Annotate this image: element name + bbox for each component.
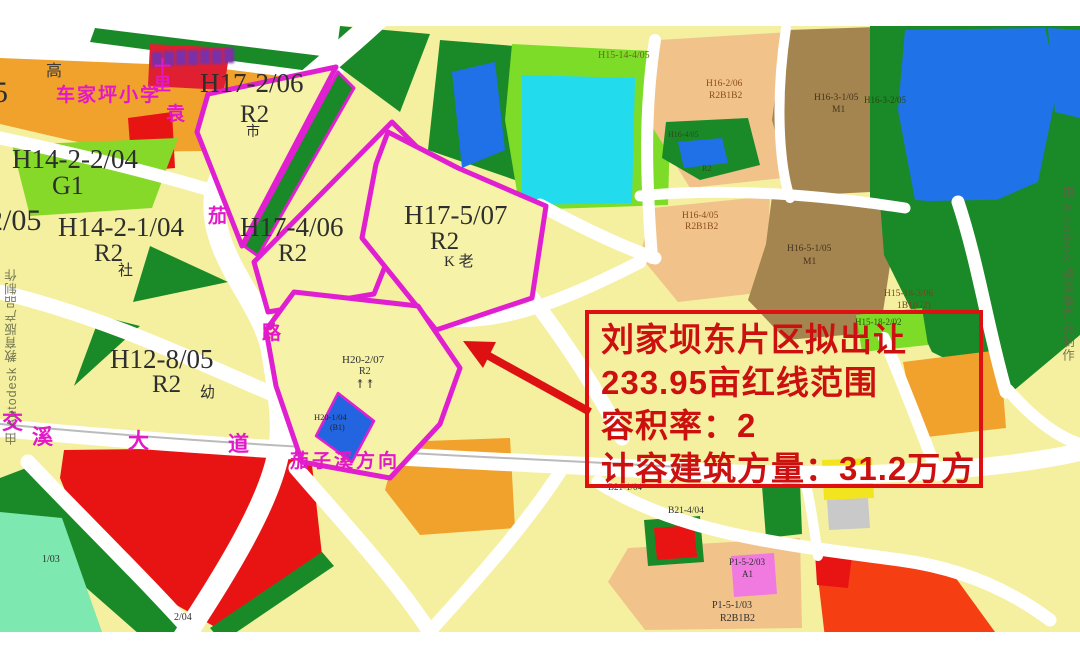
mark-k-lao: K 老 — [444, 255, 474, 270]
parcel-label-h17-4: H17-4/06 — [240, 214, 344, 241]
annotation-line-4: 计容建筑方量：31.2万方 — [601, 447, 979, 490]
tree-icons: ↟↟ — [355, 378, 375, 390]
zone-label-h16-4: R2B1B2 — [685, 223, 718, 233]
street-char-lu: 路 — [262, 324, 281, 343]
street-char-xi: 溪 — [32, 427, 53, 448]
parcel-label-h16-5-1: H16-5-1/05 — [787, 245, 831, 255]
zone-label-p1-5-2: A1 — [742, 570, 753, 579]
parcel-label-h16-3-2: H16-3-2/05 — [864, 96, 906, 105]
mark-you: 幼 — [200, 386, 215, 401]
green-b-right — [762, 482, 802, 538]
zone-label-h16-2: R2B1B2 — [709, 92, 742, 102]
zone-label-h16-3-1: M1 — [832, 106, 845, 116]
parcel-label-b21-4: B21-4/04 — [668, 507, 704, 517]
parcel-label-edge-2-04: 2/04 — [174, 613, 192, 623]
parcel-label-h17-5: H17-5/07 — [404, 202, 508, 229]
zone-label-p1-5-1: R2B1B2 — [720, 614, 755, 624]
annotation-line-1: 刘家坝东片区拟出让 — [601, 318, 979, 361]
autodesk-credit-right: 由 Autodesk 教育版产品制作 — [1058, 185, 1077, 415]
street-char-da: 大 — [128, 431, 149, 452]
parcel-label-h20-2: H20-2/07 — [342, 355, 384, 366]
street-char-yuan: 袁 — [166, 105, 185, 124]
parcel-label-edge-5: 5 — [0, 78, 8, 108]
parcel-label-h14-2-1: H14-2-1/04 — [58, 214, 184, 241]
autodesk-credit-left: 由 Autodesk 教育版产品制作 — [2, 185, 21, 445]
street-char-qie: 茄 — [208, 207, 227, 226]
parcel-label-h16-3-1: H16-3-1/05 — [814, 94, 858, 104]
top-margin — [0, 0, 1080, 26]
parcel-label-edge-1-03: 1/03 — [42, 555, 60, 565]
annotation-box: 刘家坝东片区拟出让 233.95亩红线范围 容积率：2 计容建筑方量：31.2万… — [585, 310, 983, 488]
parcel-label-h20-1: H20-1/04 — [314, 413, 347, 422]
cyan-parcel — [522, 75, 635, 205]
parcel-label-h16-small: H16-4/05 — [668, 131, 699, 139]
parcel-label-p1-5-2: P1-5-2/03 — [729, 558, 765, 567]
mark-shi: 市 — [246, 126, 260, 140]
parcel-label-h12-8: H12-8/05 — [110, 346, 214, 373]
parcel-label-h15-18-3: H15-18-3/06 — [884, 290, 933, 300]
zone-label-h20-1: (B1) — [330, 424, 345, 432]
annotation-line-2: 233.95亩红线范围 — [601, 361, 979, 404]
parcel-label-p1-5-1: P1-5-1/03 — [712, 601, 752, 611]
parcel-label-h16-4: H16-4/05 — [682, 212, 718, 222]
river-blue — [898, 28, 1058, 205]
zone-label-g1: G1 — [52, 173, 84, 199]
parcel-label-h16-2: H16-2/06 — [706, 80, 742, 90]
zone-label-h17-4: R2 — [278, 241, 307, 266]
bottom-margin — [0, 632, 1080, 649]
zone-label-h12-8: R2 — [152, 372, 181, 397]
zone-label-h16-5-1: M1 — [803, 258, 816, 268]
gray-patch — [827, 498, 870, 530]
annotation-line-3: 容积率：2 — [601, 404, 979, 447]
mark-she: 社 — [118, 264, 133, 279]
zone-label-h16-small: R2 — [702, 165, 711, 173]
zone-label-h17-5: R2 — [430, 229, 459, 254]
parcel-label-h15-14-4: H15-14-4/05 — [598, 51, 650, 61]
mark-gao: 高 — [46, 64, 62, 80]
parcel-label-h17-2: H17-2/06 — [200, 70, 304, 97]
label-qiezixi-direction: 茄子溪方向 — [290, 452, 400, 471]
zone-label-h20-2: R2 — [359, 367, 371, 377]
zone-label-h17-2: R2 — [240, 102, 269, 127]
parcel-label-h14-2-2: H14-2-2/04 — [12, 146, 138, 173]
street-char-dao: 道 — [228, 434, 249, 455]
red-square-b21 — [654, 525, 697, 560]
street-shili: 十里 — [152, 58, 169, 92]
zoning-map: 5 高 车家坪小学 十里 袁 茄 路 H14-2-2/04 G1 2/05 H1… — [0, 0, 1080, 649]
label-chejiaping-school: 车家坪小学 — [56, 86, 161, 105]
